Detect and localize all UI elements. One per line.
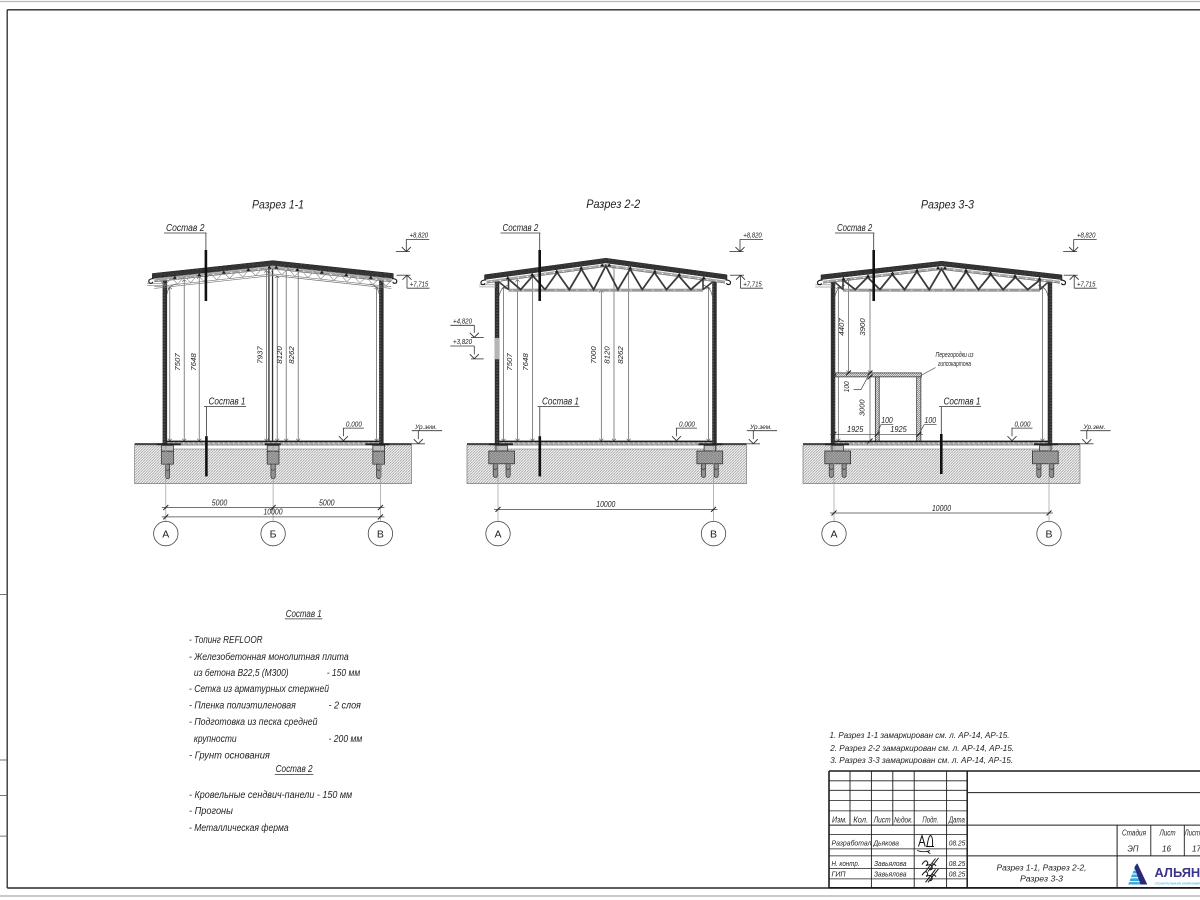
svg-text:1925: 1925 [890, 425, 907, 434]
svg-text:крупности: крупности [194, 734, 237, 745]
svg-text:3000: 3000 [858, 399, 867, 416]
svg-text:- Прогоны: - Прогоны [189, 806, 233, 817]
svg-text:08.25: 08.25 [949, 838, 966, 847]
svg-text:Стадия: Стадия [1122, 828, 1147, 837]
svg-text:- Сетка из арматурных стержней: - Сетка из арматурных стержней [189, 684, 329, 695]
svg-text:5000: 5000 [212, 498, 228, 507]
svg-text:+7,715: +7,715 [743, 279, 762, 288]
svg-text:Б: Б [270, 529, 277, 541]
svg-text:ГИП: ГИП [832, 870, 846, 879]
svg-text:Дьякова: Дьякова [873, 838, 899, 847]
svg-text:Дата: Дата [948, 816, 965, 825]
svg-text:8120: 8120 [275, 345, 284, 363]
svg-text:10000: 10000 [932, 504, 951, 513]
svg-text:+7,715: +7,715 [1077, 279, 1096, 288]
svg-text:- Грунт основания: - Грунт основания [189, 750, 271, 761]
svg-text:- 2 слоя: - 2 слоя [329, 701, 362, 712]
svg-text:7648: 7648 [521, 352, 530, 370]
svg-text:100: 100 [881, 416, 893, 425]
svg-text:10000: 10000 [596, 500, 615, 509]
svg-text:Лист: Лист [1159, 828, 1176, 837]
svg-text:ЭП: ЭП [1128, 844, 1140, 854]
svg-text:Состав 1: Состав 1 [542, 396, 579, 407]
svg-text:Завьялова: Завьялова [874, 859, 907, 868]
svg-text:8262: 8262 [616, 345, 625, 363]
svg-text:0,000: 0,000 [346, 419, 362, 428]
svg-text:3. Разрез 3-3 замаркирован см.: 3. Разрез 3-3 замаркирован см. л. АР-14,… [830, 755, 1013, 765]
svg-text:Ур.зем.: Ур.зем. [414, 424, 437, 431]
svg-text:- Кровельные сендвич-панели -: - Кровельные сендвич-панели - 150 мм [189, 790, 352, 801]
svg-text:- Металлическая ферма: - Металлическая ферма [189, 822, 289, 834]
svg-text:8120: 8120 [603, 345, 612, 363]
svg-text:7507: 7507 [505, 352, 514, 370]
svg-text:- Пленка полиэтиленовая: - Пленка полиэтиленовая [189, 701, 296, 712]
svg-text:Кол.: Кол. [853, 816, 868, 825]
svg-text:В: В [710, 529, 717, 541]
svg-text:В: В [1045, 529, 1052, 541]
svg-text:Завьялова: Завьялова [874, 870, 907, 879]
svg-text:- Железобетонная монолитная п: - Железобетонная монолитная плита [189, 651, 349, 663]
svg-text:7937: 7937 [255, 345, 264, 363]
svg-text:+4,820: +4,820 [453, 316, 472, 325]
svg-text:Лист: Лист [873, 816, 891, 825]
svg-text:Листов: Листов [1184, 828, 1200, 837]
svg-text:+7,715: +7,715 [410, 279, 429, 288]
svg-text:17: 17 [1192, 844, 1200, 854]
svg-text:+3,820: +3,820 [453, 337, 472, 346]
svg-text:100: 100 [925, 416, 937, 425]
svg-text:№док.: №док. [894, 816, 913, 825]
svg-text:- Топинг REFLOOR: - Топинг REFLOOR [189, 635, 263, 646]
svg-text:Ур.зем.: Ур.зем. [749, 424, 772, 431]
svg-text:Разрез 3-3: Разрез 3-3 [1020, 874, 1063, 884]
svg-text:+8,820: +8,820 [1077, 230, 1096, 239]
svg-text:Разрез 1-1, Разрез 2-2,: Разрез 1-1, Разрез 2-2, [997, 862, 1087, 872]
svg-text:3900: 3900 [858, 317, 867, 335]
svg-text:Подп.: Подп. [922, 816, 938, 825]
svg-text:100: 100 [842, 381, 851, 393]
svg-text:7648: 7648 [189, 352, 198, 370]
svg-text:Состав 1: Состав 1 [286, 609, 322, 620]
svg-text:16: 16 [1162, 844, 1171, 854]
svg-text:08.25: 08.25 [949, 859, 966, 868]
svg-text:гипсокартона: гипсокартона [938, 359, 971, 368]
svg-text:- Подготовка из песка средней: - Подготовка из песка средней [189, 717, 318, 728]
svg-text:В: В [377, 529, 384, 541]
svg-text:0,000: 0,000 [679, 419, 695, 428]
svg-text:из бетона В22,5 (М300): из бетона В22,5 (М300) [194, 667, 289, 679]
svg-text:1. Разрез 1-1 замаркирован см.: 1. Разрез 1-1 замаркирован см. л. АР-14,… [830, 730, 1010, 740]
svg-text:Состав 2: Состав 2 [276, 764, 313, 775]
svg-text:Ур.зем.: Ур.зем. [1083, 424, 1106, 431]
svg-text:Разрез 1-1: Разрез 1-1 [252, 200, 304, 212]
svg-text:2. Разрез 2-2 замаркирован см.: 2. Разрез 2-2 замаркирован см. л. АР-14,… [829, 743, 1014, 753]
svg-text:Состав 1: Состав 1 [944, 396, 981, 407]
svg-text:АЛЬЯНС: АЛЬЯНС [1155, 866, 1200, 880]
svg-text:Состав 1: Состав 1 [209, 396, 246, 407]
svg-text:08.25: 08.25 [949, 870, 966, 879]
svg-text:Разрез 2-2: Разрез 2-2 [586, 199, 641, 211]
svg-text:8262: 8262 [287, 345, 296, 363]
svg-text:+8,820: +8,820 [743, 230, 762, 239]
svg-text:Перегородки из: Перегородки из [936, 350, 974, 359]
svg-text:- 200 мм: - 200 мм [329, 734, 363, 745]
svg-text:1925: 1925 [847, 425, 864, 434]
svg-text:Состав 2: Состав 2 [166, 223, 205, 234]
svg-text:строительная компания: строительная компания [1155, 880, 1200, 885]
svg-text:Разработал: Разработал [832, 838, 873, 847]
svg-text:0,000: 0,000 [1015, 419, 1031, 428]
svg-text:- 150 мм: - 150 мм [327, 668, 361, 679]
svg-text:Н. контр.: Н. контр. [832, 859, 860, 868]
svg-text:10000: 10000 [264, 508, 283, 517]
svg-text:Состав 2: Состав 2 [503, 223, 539, 234]
svg-text:Изм.: Изм. [832, 816, 847, 825]
svg-text:Состав 2: Состав 2 [837, 223, 873, 234]
svg-text:А: А [830, 529, 837, 541]
svg-text:+8,820: +8,820 [410, 230, 429, 239]
svg-text:5000: 5000 [319, 498, 335, 507]
svg-text:7507: 7507 [173, 352, 182, 370]
svg-text:4407: 4407 [837, 317, 846, 335]
svg-text:А: А [494, 529, 501, 541]
svg-text:7000: 7000 [589, 345, 598, 363]
svg-text:Разрез 3-3: Разрез 3-3 [921, 200, 975, 212]
svg-text:А: А [162, 529, 169, 541]
